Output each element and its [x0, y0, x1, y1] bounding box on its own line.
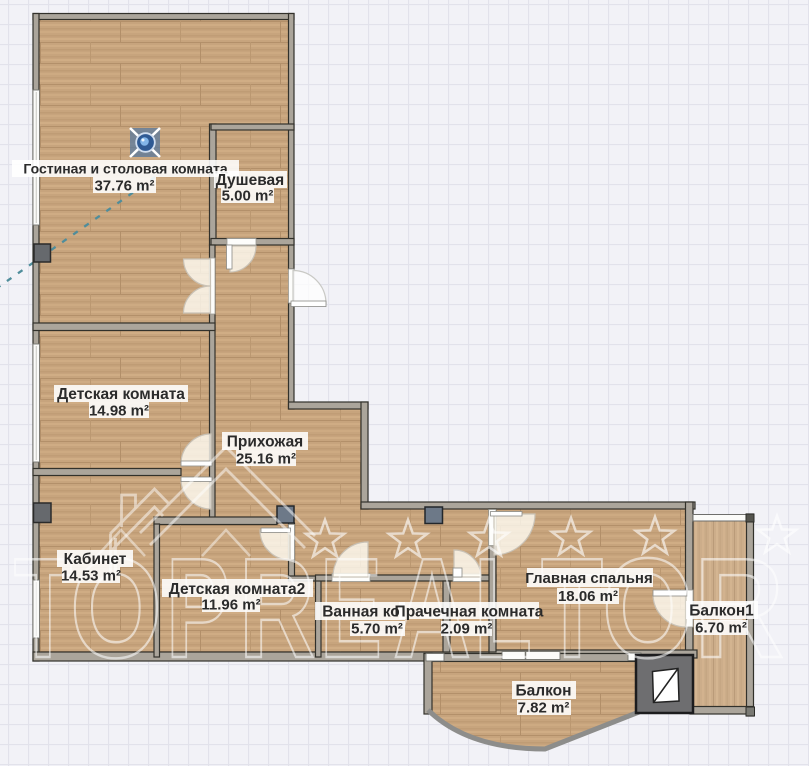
svg-text:T: T	[541, 529, 603, 688]
svg-text:O: O	[602, 529, 694, 688]
svg-text:Детская комната: Детская комната	[57, 386, 185, 403]
svg-text:5.00 m²: 5.00 m²	[222, 188, 274, 205]
svg-text:Детская комната2: Детская комната2	[169, 581, 305, 598]
svg-text:37.76 m²: 37.76 m²	[94, 178, 154, 195]
svg-text:Балкон: Балкон	[516, 683, 572, 700]
svg-text:5.70 m²: 5.70 m²	[351, 621, 403, 638]
svg-text:14.53 m²: 14.53 m²	[61, 568, 121, 585]
svg-text:Главная спальня: Главная спальня	[525, 570, 652, 587]
svg-text:14.98 m²: 14.98 m²	[89, 403, 149, 420]
svg-text:Кабинет: Кабинет	[64, 551, 127, 568]
svg-text:7.82 m²: 7.82 m²	[518, 700, 570, 717]
svg-text:18.06 m²: 18.06 m²	[558, 588, 618, 605]
svg-text:Прачечная комната: Прачечная комната	[395, 604, 544, 621]
svg-text:25.16 m²: 25.16 m²	[236, 451, 296, 468]
svg-text:Балкон1: Балкон1	[689, 603, 754, 620]
svg-text:11.96 m²: 11.96 m²	[201, 597, 260, 614]
svg-text:Гостиная и столовая комната: Гостиная и столовая комната	[23, 161, 227, 177]
svg-text:6.70 m²: 6.70 m²	[695, 620, 747, 637]
svg-text:Прихожая: Прихожая	[227, 434, 303, 451]
svg-text:Душевая: Душевая	[216, 172, 284, 189]
svg-text:Ванная ко: Ванная ко	[322, 604, 400, 621]
svg-text:2.09 m²: 2.09 m²	[441, 621, 493, 638]
